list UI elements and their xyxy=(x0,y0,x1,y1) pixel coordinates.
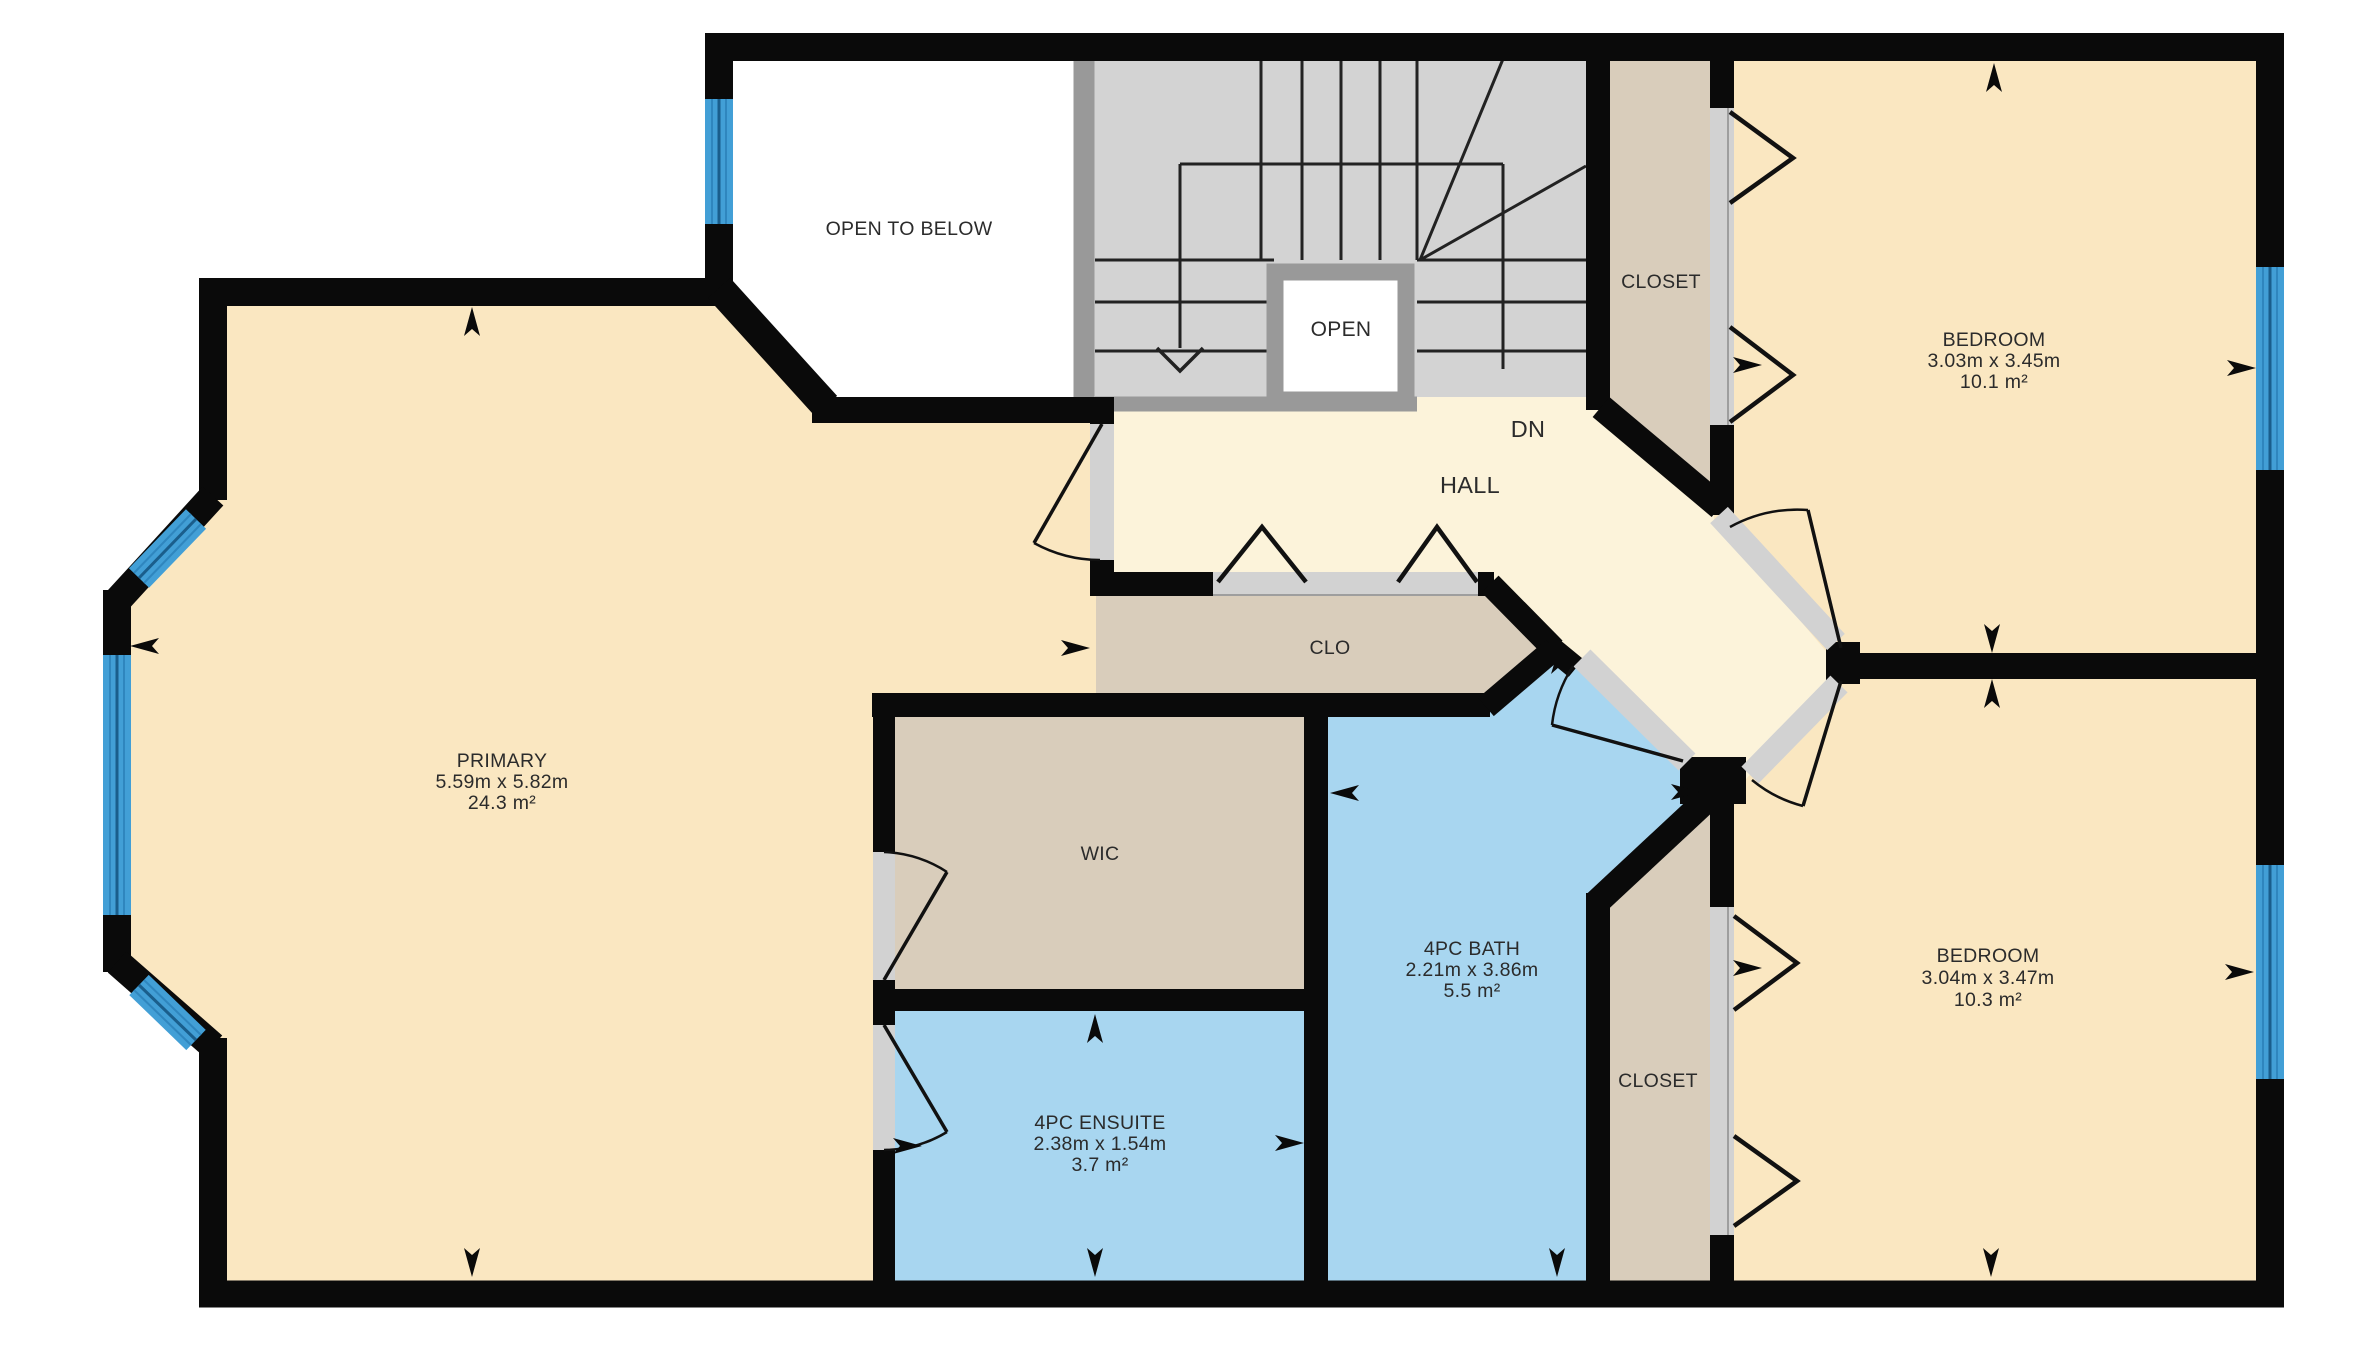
svg-text:10.1 m²: 10.1 m² xyxy=(1960,371,2028,393)
svg-text:PRIMARY: PRIMARY xyxy=(457,750,548,772)
svg-text:5.59m x 5.82m: 5.59m x 5.82m xyxy=(436,771,569,793)
svg-text:3.7 m²: 3.7 m² xyxy=(1071,1154,1128,1176)
svg-text:2.38m x 1.54m: 2.38m x 1.54m xyxy=(1034,1133,1167,1155)
svg-text:HALL: HALL xyxy=(1440,472,1500,498)
svg-text:24.3 m²: 24.3 m² xyxy=(468,792,536,814)
svg-text:CLOSET: CLOSET xyxy=(1621,271,1701,293)
svg-text:3.04m x 3.47m: 3.04m x 3.47m xyxy=(1922,967,2055,989)
svg-text:5.5 m²: 5.5 m² xyxy=(1443,980,1500,1002)
svg-text:CLOSET: CLOSET xyxy=(1618,1070,1698,1092)
svg-text:DN: DN xyxy=(1511,416,1546,442)
svg-text:CLO: CLO xyxy=(1310,637,1351,659)
svg-text:OPEN: OPEN xyxy=(1311,318,1372,341)
svg-text:10.3 m²: 10.3 m² xyxy=(1954,989,2022,1011)
svg-text:BEDROOM: BEDROOM xyxy=(1943,329,2046,351)
svg-text:4PC ENSUITE: 4PC ENSUITE xyxy=(1034,1112,1165,1134)
svg-text:WIC: WIC xyxy=(1081,843,1120,865)
svg-text:OPEN TO BELOW: OPEN TO BELOW xyxy=(826,218,993,240)
svg-text:BEDROOM: BEDROOM xyxy=(1937,945,2040,967)
svg-text:4PC BATH: 4PC BATH xyxy=(1424,938,1520,960)
svg-text:2.21m x 3.86m: 2.21m x 3.86m xyxy=(1406,959,1539,981)
svg-text:3.03m x 3.45m: 3.03m x 3.45m xyxy=(1928,350,2061,372)
